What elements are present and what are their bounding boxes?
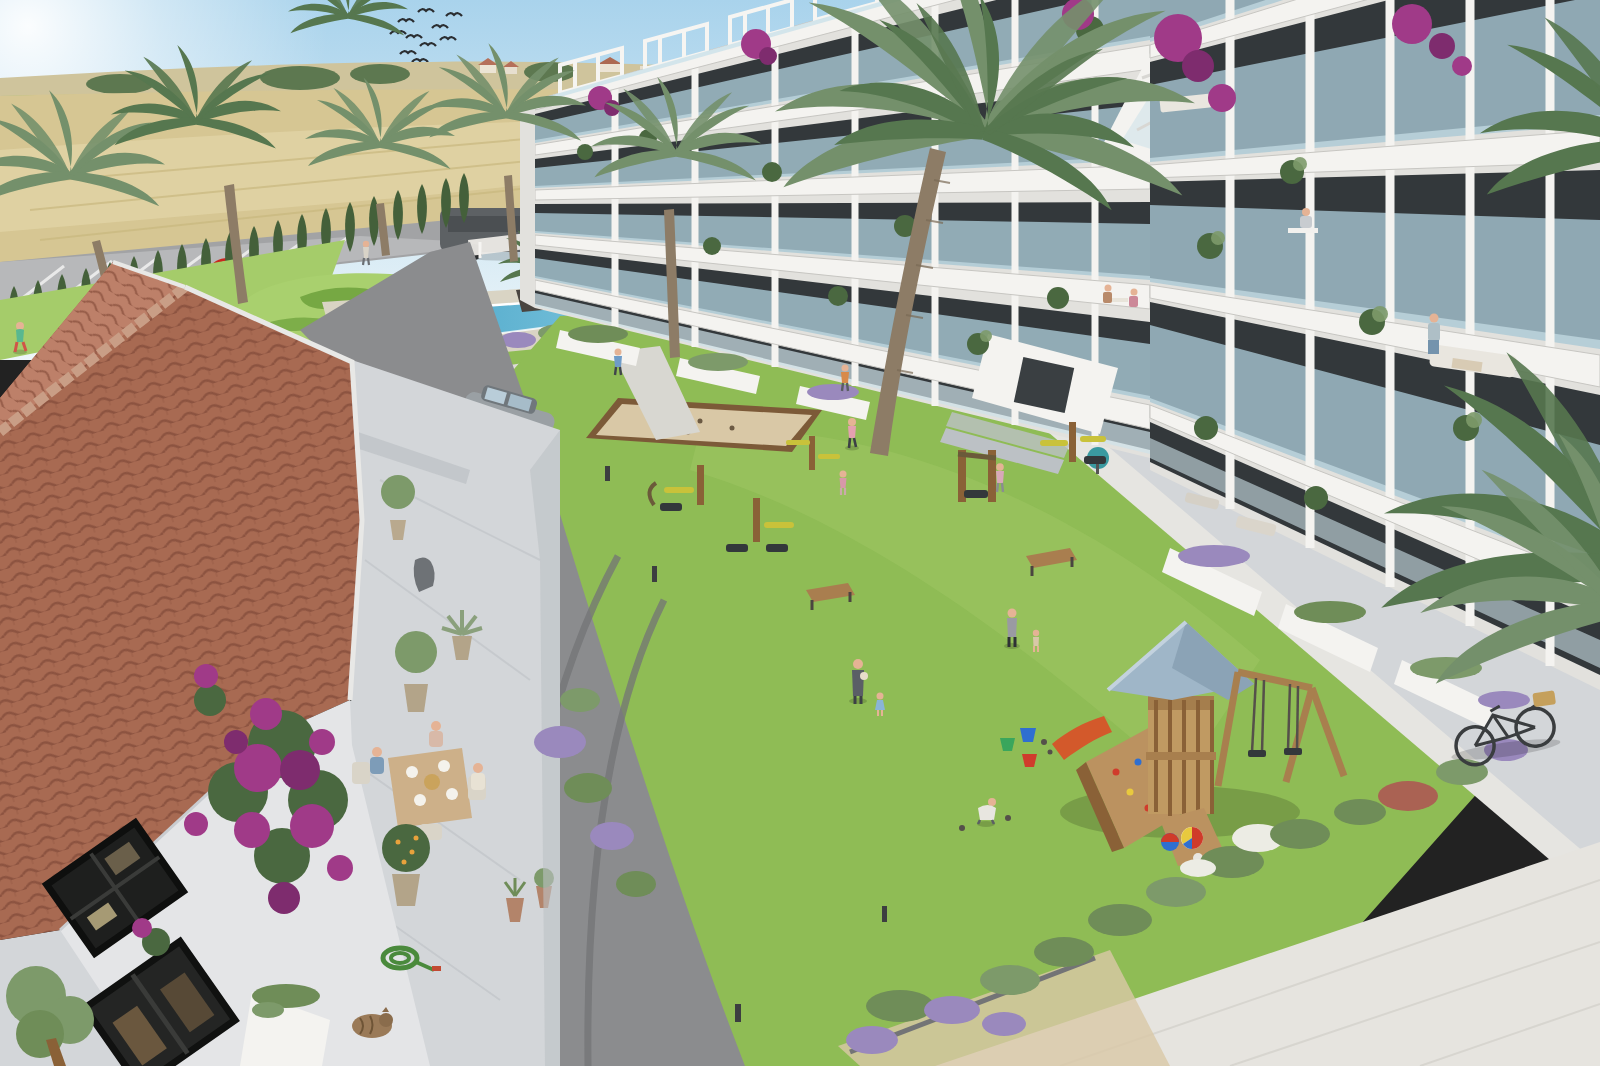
toy-ball — [1161, 833, 1179, 851]
diner-right — [471, 763, 485, 790]
terrace-planter-box — [240, 984, 330, 1066]
person-tending-plants — [1428, 314, 1440, 355]
beach-ball — [1181, 827, 1203, 849]
diner-left — [370, 747, 384, 774]
baby — [860, 672, 868, 680]
scene-canvas — [0, 0, 1600, 1066]
render-image — [0, 0, 1600, 1066]
